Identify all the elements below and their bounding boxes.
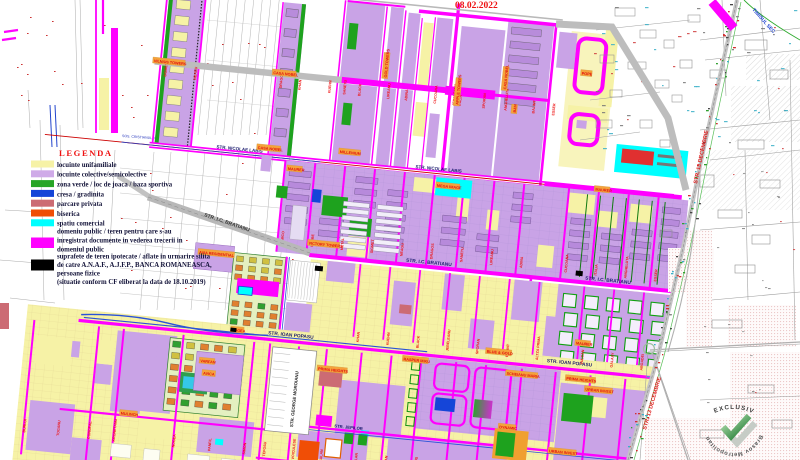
svg-text:LEGENDA: LEGENDA	[59, 148, 113, 158]
svg-text:cresa / gradinita: cresa / gradinita	[57, 191, 105, 198]
svg-text:domeniul public: domeniul public	[57, 247, 104, 254]
svg-text:parcare privata: parcare privata	[57, 201, 103, 208]
svg-text:de catre A.N.A.F., A.J.F.P., B: de catre A.N.A.F., A.J.F.P., BANCA ROMAN…	[57, 262, 212, 269]
svg-text:locuinte unifamiliale: locuinte unifamiliale	[57, 162, 116, 169]
svg-text:locuinte colective/semicolecti: locuinte colective/semicolective	[57, 172, 147, 179]
svg-text:biserica: biserica	[57, 211, 80, 218]
svg-text:B&N: B&N	[513, 104, 518, 113]
svg-text:URBAN: URBAN	[383, 455, 388, 460]
svg-text:inregistrat documente in veder: inregistrat documente in vederea treceri…	[57, 238, 183, 245]
svg-text:persoane fizice: persoane fizice	[57, 271, 100, 278]
svg-text:suprafete de teren ipotecate /: suprafete de teren ipotecate / aflate in…	[57, 254, 211, 261]
svg-text:08.02.2022: 08.02.2022	[455, 1, 498, 11]
svg-text:spatiu comercial: spatiu comercial	[57, 221, 105, 228]
svg-text:zona verde / loc de joaca / ba: zona verde / loc de joaca / baza sportiv…	[57, 182, 173, 189]
svg-text:(situatie conform CF eliberat: (situatie conform CF eliberat la data de…	[57, 279, 206, 286]
svg-text:CALAN: CALAN	[354, 452, 359, 460]
svg-text:domeniu public / teren pentru: domeniu public / teren pentru care s-au	[57, 229, 172, 236]
